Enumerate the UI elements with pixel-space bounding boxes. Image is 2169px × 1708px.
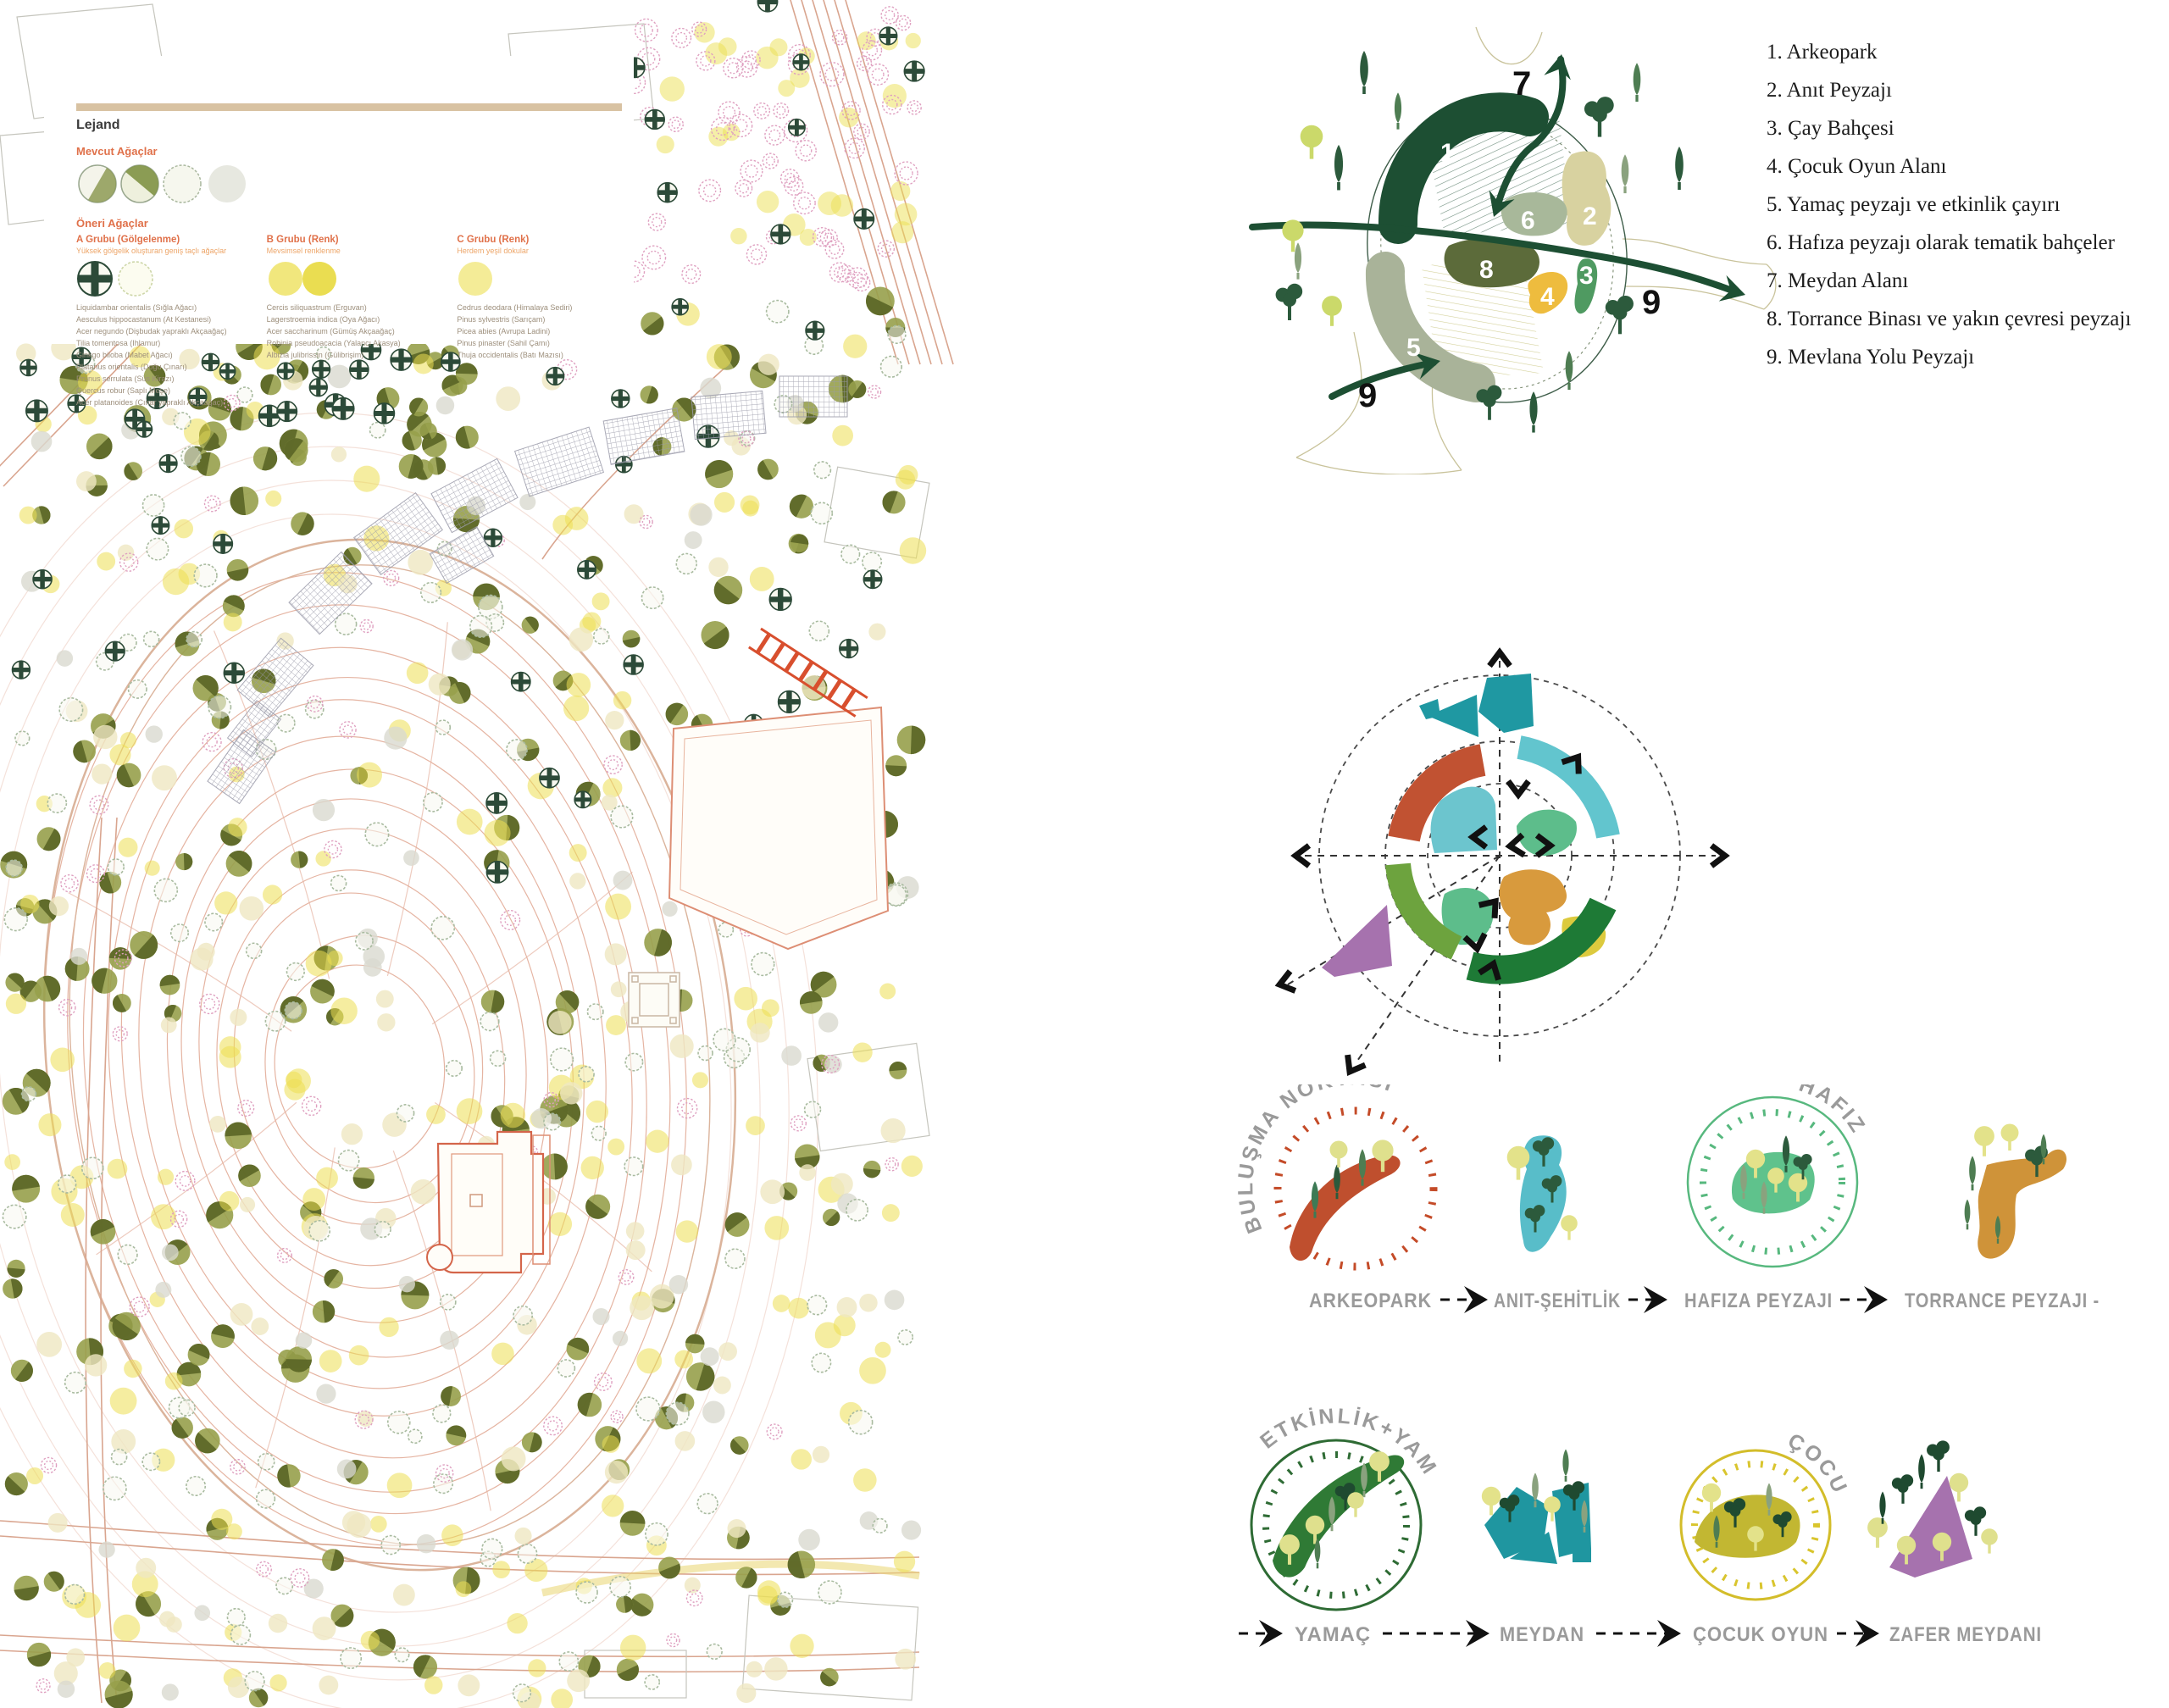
tree-symbol [194,564,217,587]
tree-symbol [230,1009,247,1026]
tree-symbol [229,486,258,516]
tree-symbol [257,1561,271,1576]
tree-symbol [760,1179,785,1204]
group-c-symbols [457,259,541,298]
tree-symbol [47,794,66,812]
tree-symbol [231,1625,251,1644]
tree-symbol [188,1340,214,1366]
tree-symbol [269,1614,287,1633]
tree-symbol [447,1061,463,1077]
tree-symbol [798,1529,820,1551]
tree-symbol [3,1277,24,1298]
tree-symbol [662,901,677,917]
tree-symbol [491,1343,514,1366]
tree-symbol [847,268,868,288]
step-label: ARKEOPARK [1309,1289,1432,1312]
tree-symbol [757,0,777,12]
tree-symbol [286,963,304,981]
tree-symbol [605,1461,628,1483]
tree-symbol [429,674,451,696]
tree-symbol [27,1643,54,1670]
tree-symbol [610,1577,630,1597]
tree-symbol [724,58,743,78]
tree-symbol [763,153,778,169]
tree-symbol [492,1561,510,1578]
tree-symbol [897,725,926,754]
plaza [669,707,888,949]
meydan-shape [1419,699,1440,719]
tree-symbol [286,1068,311,1093]
tree-symbol [879,27,897,45]
step-label: ÇOCUK OYUN [1693,1623,1828,1646]
tree-symbol [247,943,262,958]
zone-number-9-left: 9 [1358,377,1377,414]
tree-symbol [697,1494,718,1514]
tree-symbol [277,714,295,732]
program-item: 3. Çay Bahçesi [1767,117,2165,141]
tree-symbol [48,1513,68,1533]
tree-symbol [669,1275,688,1294]
tree-symbol [162,1244,179,1261]
tree-symbol [846,1200,868,1221]
tree-symbol [0,1472,28,1500]
tree-symbol [896,15,911,30]
tree-symbol [352,1167,374,1190]
tree-symbol [403,850,419,866]
step-label: MEYDAN [1500,1623,1584,1646]
tree-symbol [110,1388,137,1415]
group-b-title: B Grubu (Renk) [267,235,432,247]
tree-symbol [765,125,785,145]
tree-symbol [831,1173,853,1195]
tree-symbol [548,1011,571,1034]
icon-torrance [1965,1124,2066,1259]
tree-symbol [657,136,674,153]
tree-symbol [347,1513,371,1538]
existing-tree-symbols-icons [76,163,254,205]
tree-symbol [718,1342,737,1361]
tree-symbol [291,512,318,539]
tree-symbol [306,951,332,977]
tree-symbol [579,1067,594,1082]
tree-symbol [522,613,542,634]
tree-symbol [118,1245,137,1264]
tree-symbol [186,1477,205,1495]
tree-symbol [646,1523,668,1545]
program-item: 9. Mevlana Yolu Peyzajı [1767,346,2165,369]
tree-symbol [574,791,591,807]
tree-symbol [3,1205,25,1228]
tree-symbol [338,1151,358,1171]
tree-symbol [586,1101,608,1123]
tree-symbol [626,1240,646,1260]
tree-symbol [676,553,696,574]
tree-symbol [754,103,769,119]
tree-symbol [605,943,627,965]
tree-symbol [411,1179,436,1205]
tree-symbol [10,1173,40,1202]
tree-symbol [105,1681,136,1708]
terrace-block [603,408,685,464]
tree-symbol [611,981,627,997]
tree-symbol [837,1297,857,1317]
tree-symbol [873,1518,887,1533]
tree-symbol [92,763,112,784]
tree-symbol [42,1457,57,1472]
tree-symbol [408,1429,422,1443]
tree-symbol [58,1175,76,1193]
tree-symbol [674,1350,693,1368]
tree-symbol [582,612,601,630]
tree-symbol [799,1164,816,1181]
tree-symbol [623,630,642,650]
tree-symbol [400,430,422,452]
tree-symbol [85,1354,107,1376]
tree-symbol [129,680,147,698]
tree-symbol [357,762,382,788]
tree-symbol [901,1156,923,1177]
tree-symbol [611,1411,623,1422]
zone-number-9-right: 9 [1642,284,1661,321]
tree-symbol [197,943,215,961]
tree-symbol [151,1204,176,1229]
existing-trees-title: Mevcut Ağaçlar [76,145,622,158]
zone-number-2: 2 [1583,202,1597,230]
tree-symbol [409,1651,437,1679]
tree-symbol [713,1377,731,1395]
tree-symbol [202,733,221,751]
tree-symbol [895,203,918,226]
tree-symbol [142,1453,159,1470]
tree-symbol [105,641,125,661]
tree-symbol [397,1105,413,1122]
proposed-trees-title: Öneri Ağaçlar [76,217,622,230]
tree-symbol [223,591,248,617]
tree-symbol [645,110,664,130]
tree-symbol [395,1648,408,1661]
tree-symbol [660,76,685,101]
step-label: YAMAÇ [1295,1623,1371,1646]
tree-symbol [635,19,658,42]
tree-symbol [130,931,164,965]
tree-symbol [569,844,587,862]
tree-symbol [737,57,757,77]
tree-symbol [727,1519,746,1538]
tree-symbol [625,1053,642,1070]
tree-symbol [702,457,733,488]
tree-symbol [296,1332,313,1349]
zone-number-8: 8 [1479,256,1494,284]
group-a-title: A Grubu (Gölgelenme) [76,235,241,247]
tree-symbol [619,1270,633,1284]
tree-symbol [895,1649,916,1670]
tree-symbol [165,1372,183,1390]
tree-symbol [559,1652,578,1671]
tree-symbol [439,1384,461,1406]
tree-symbol [49,896,69,916]
tree-symbol [99,1662,116,1679]
tree-symbol [671,1155,692,1176]
tree-symbol [868,624,885,640]
terrace-block [779,376,847,417]
tree-symbol [417,1534,436,1554]
tree-symbol [814,462,831,479]
tree-symbol [152,765,177,790]
tree-symbol [581,1156,604,1179]
tree-symbol [109,994,131,1016]
tree-symbol [136,421,153,437]
terrace-block [237,638,313,717]
tree-symbol [258,1454,275,1470]
tree-symbol [746,245,766,264]
tree-symbol [806,321,824,340]
tree-symbol [750,1023,769,1042]
zone-number-1: 1 [1440,139,1455,167]
tree-symbol [374,1222,391,1238]
tree-symbol [725,1249,745,1268]
tree-symbol [239,896,263,921]
tree-symbol [161,1018,177,1034]
tree-symbol [678,1099,697,1118]
tree-symbol [44,1567,69,1592]
tree-symbol [59,698,82,721]
tree-symbol [861,286,894,319]
tree-symbol [548,1212,572,1236]
tree-symbol [885,755,907,777]
tree-symbol [269,1674,286,1691]
tree-symbol [767,301,789,323]
tree-symbol [879,487,906,513]
tree-symbol [226,1523,242,1539]
tree-symbol [778,1592,793,1607]
tree-symbol [602,1435,620,1453]
icon-meydan [1482,1450,1591,1565]
tree-symbol [620,729,641,751]
tree-symbol [620,1635,646,1661]
tree-symbol [685,531,702,549]
tree-symbol [752,953,774,976]
tree-symbol [313,1300,336,1323]
tree-symbol [707,344,732,369]
tree-symbol [381,1536,400,1555]
tree-symbol [648,213,665,230]
tree-symbol [626,1222,645,1240]
tree-symbol [641,587,663,608]
tree-symbol [811,502,832,524]
tree-symbol [587,1004,602,1019]
tree-symbol [209,1116,226,1133]
tree-symbol [882,1204,900,1222]
tree-symbol [785,177,803,196]
tree-symbol [363,958,382,977]
tree-symbol [898,1330,913,1345]
tree-symbol [774,103,789,119]
tree-symbol [112,1450,127,1465]
tree-symbol [228,818,247,836]
tree-symbol [859,1294,877,1311]
step-label: TORRANCE PEYZAJI - [1905,1289,2100,1312]
step-label: ANIT-ŞEHİTLİK [1494,1289,1621,1312]
tree-symbol [453,426,479,452]
tree-symbol [513,1684,531,1702]
tree-symbol [331,446,347,462]
tree-symbol [519,494,535,510]
tree-symbol [666,1402,689,1425]
tree-symbol [319,1350,342,1372]
tree-symbol [809,621,829,640]
tree-symbol [901,1520,921,1539]
tree-symbol [219,1046,241,1068]
tree-symbol [315,851,330,866]
tree-symbol [486,793,507,813]
tree-symbol [602,778,622,797]
tree-symbol [540,768,559,788]
tree-symbol [773,1295,790,1312]
group-c-subtitle: Herdem yeşil dokular [457,247,622,256]
tree-symbol [4,1154,20,1170]
program-item: 2. Anıt Peyzajı [1767,79,2165,103]
tree-symbol [224,663,244,683]
tree-symbol [291,851,308,868]
tree-symbol [708,576,742,610]
zone-shape-2 [1562,151,1611,245]
tree-symbol [227,1609,245,1627]
tree-symbol [331,875,347,890]
tree-symbol [208,696,230,718]
tree-symbol [567,1334,593,1361]
tree-symbol [337,1460,357,1479]
tree-symbol [863,552,881,571]
tree-symbol [253,446,280,474]
tree-symbol [457,1098,483,1124]
tree-symbol [796,141,816,161]
group-a-subtitle: Yüksek gölgelik oluşturan geniş taçlı ağ… [76,247,241,256]
tree-symbol [118,838,137,857]
yellow-road-tint [542,1564,919,1593]
tree-symbol [750,567,774,591]
tree-symbol [205,913,223,931]
tree-symbol [613,871,633,890]
tree-symbol [124,1360,142,1378]
tree-symbol [310,975,339,1004]
tree-symbol [641,385,661,406]
tree-symbol [365,823,388,846]
tree-symbol [791,1449,812,1469]
tree-symbol [764,1657,787,1680]
tree-symbol [889,1061,907,1079]
tree-symbol [313,799,335,821]
tree-symbol [813,1446,829,1463]
tree-symbol [854,209,874,229]
tree-symbol [551,1048,574,1071]
tree-symbol [480,1012,499,1031]
legend: Lejand Mevcut Ağaçlar Öneri Ağaçlar [44,56,634,344]
group-b-subtitle: Mevsimsel renklenme [267,247,432,256]
tree-symbol [849,1411,873,1434]
tree-symbol [214,535,233,554]
tree-symbol [702,1401,724,1423]
tree-symbol [175,519,194,539]
tree-symbol [341,1123,363,1145]
tree-symbol [424,793,442,812]
tree-symbol [14,1576,40,1602]
tree-symbol [330,997,358,1024]
tree-symbol [645,1675,659,1689]
courtyard-building [629,973,680,1027]
tree-symbol [65,1372,86,1393]
tree-symbol [699,180,721,202]
tree-symbol [852,1042,872,1062]
tree-symbol [805,1101,821,1117]
tree-symbol [602,1494,624,1517]
tree-symbol [580,1195,610,1224]
tree-symbol [22,1087,36,1101]
tree-symbol [70,948,87,965]
tree-symbol [384,727,407,750]
tree-symbol [757,191,779,213]
tree-symbol [377,1013,395,1031]
tree-symbol [881,356,902,377]
tree-symbol [370,423,386,438]
radial-flow-diagram [1237,627,1796,1101]
tree-symbol [607,1139,624,1156]
tree-symbol [302,1188,325,1211]
tree-symbol [512,673,530,691]
tree-symbol [544,1417,563,1435]
tree-symbol [567,673,591,697]
tree-symbol [309,1221,330,1241]
tree-symbol [502,1446,526,1471]
tree-symbol [234,1161,260,1187]
tree-symbol [513,1306,532,1325]
tree-symbol [13,661,31,679]
zone-number-6: 6 [1521,207,1535,235]
tree-symbol [904,61,924,81]
zone-number-5: 5 [1406,334,1421,362]
tree-symbol [147,538,168,559]
tree-symbol [592,1308,609,1325]
tree-symbol [360,620,373,633]
tree-symbol [641,312,668,340]
tree-symbol [894,1551,915,1572]
tree-symbol [97,552,115,571]
tree-symbol [881,1118,906,1143]
tree-symbol [781,1045,802,1066]
tree-symbol [6,994,26,1014]
tree-symbol [174,413,191,430]
program-list: 1. Arkeopark 2. Anıt Peyzajı 3. Çay Bahç… [1767,41,2165,384]
tree-symbol [779,690,801,713]
tree-symbol [567,1669,590,1692]
tree-symbol [349,1345,369,1366]
program-item: 1. Arkeopark [1767,41,2165,64]
terrace-block [515,427,604,496]
group-c-title: C Grubu (Renk) [457,235,622,247]
presentation-board: Lejand Mevcut Ağaçlar Öneri Ağaçlar [0,0,2169,1708]
tree-symbol [832,425,853,446]
tree-symbol [163,568,189,595]
tree-symbol [186,632,202,647]
tree-symbol [790,1116,806,1131]
tree-symbol [853,1468,877,1492]
tree-symbol [840,640,858,658]
tree-symbol [263,884,282,904]
tree-symbol [611,806,633,828]
tree-symbol [171,924,188,941]
step-label: HAFIZA PEYZAJI [1684,1289,1833,1312]
zafer-shape [1322,905,1392,977]
tree-symbol [815,1322,841,1348]
